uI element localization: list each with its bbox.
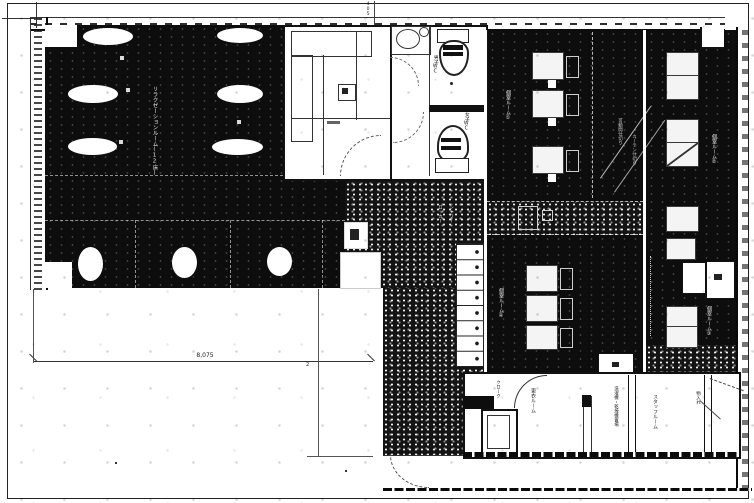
bottom-boundary-line	[383, 488, 752, 491]
changing-label: 更衣ルーム	[530, 388, 535, 430]
dim-crosshair-v	[36, 2, 37, 28]
round-stool	[267, 247, 292, 276]
corridor-fixture-box	[518, 206, 538, 230]
wc-upper-label: 男子WC	[432, 55, 437, 89]
floor-plan-sheet: 405 8,075 2 リラクゼーションルーム(12床)	[0, 0, 754, 503]
oval-table	[217, 28, 263, 43]
counter-box-large	[706, 261, 735, 299]
oval-table	[83, 28, 133, 45]
treatment-bed	[666, 306, 698, 328]
storage-label: 物入れ	[695, 391, 700, 425]
oval-table	[217, 85, 263, 103]
counter-box-mark	[714, 274, 722, 280]
counter-box-small	[682, 262, 706, 294]
wall-gap-h-g	[643, 235, 646, 345]
reception-box-mark	[612, 362, 619, 367]
toilet-tank-lower	[435, 158, 469, 173]
round-stool	[172, 247, 197, 278]
room-f-label: 個室ルーム①	[505, 90, 510, 134]
shower-label: シャワー	[448, 205, 453, 243]
bed-side-table	[560, 298, 573, 320]
treatment-bed	[666, 52, 699, 77]
dim-guide-left	[33, 289, 34, 363]
hall-dash-v1	[135, 220, 136, 288]
treatment-bed	[666, 206, 699, 232]
room-h-label: 個室ルーム④	[498, 288, 503, 324]
toilet-seat-band	[443, 52, 463, 56]
room-f-diag-note-2: カーテン仕切り	[631, 134, 636, 186]
pantry-fixture-mark	[342, 88, 348, 94]
treatment-bed	[666, 75, 699, 100]
wall-a-b	[628, 375, 636, 455]
treatment-bed	[666, 142, 699, 167]
hall-dash-v3	[322, 220, 323, 288]
oval-table	[212, 139, 263, 155]
room-g-dotted-strip	[650, 256, 651, 336]
toilet-seat-band	[441, 138, 461, 142]
hall-corner-notch-top	[45, 25, 77, 47]
bed-stool	[548, 80, 556, 88]
bed-stool	[548, 118, 556, 126]
hall-dash-h1	[45, 175, 283, 176]
shaft-box-inner	[487, 415, 510, 449]
treatment-bed	[532, 52, 564, 80]
corridor-fixture-small	[542, 210, 553, 221]
bottom-rooms-wall	[463, 452, 737, 457]
oval-table	[68, 138, 117, 155]
scan-dot-2	[345, 470, 347, 472]
treatment-bed	[526, 325, 558, 350]
dim-bottom-text: 8,075	[183, 352, 227, 359]
partition-stub-cap	[582, 395, 591, 407]
locker-strip	[456, 243, 484, 367]
treatment-bed	[526, 265, 558, 292]
pantry-counter-left	[291, 55, 313, 142]
room-g-lower-label: 個室ルーム③	[706, 306, 711, 350]
treatment-bed	[532, 146, 564, 174]
scan-mark	[126, 88, 130, 92]
corridor-edge-bottom	[487, 234, 643, 235]
wc-divider-wall-h	[429, 105, 484, 112]
bed-side-table	[566, 150, 579, 172]
treatment-bed	[526, 295, 558, 322]
bed-side-table	[566, 56, 579, 78]
bed-side-table	[560, 268, 573, 290]
closet-label: クローク	[495, 380, 500, 408]
treatment-bed	[532, 90, 564, 118]
treatment-bed	[666, 119, 699, 144]
staff-label: スタッフルーム	[652, 394, 657, 448]
pantry-counter-top	[291, 31, 372, 57]
pantry-text-smudge	[327, 121, 340, 124]
scan-dot-1	[115, 462, 117, 464]
corridor-edge-top	[487, 201, 643, 202]
pantry-shelf-line	[291, 118, 390, 119]
main-room-label: リラクゼーションルーム(12床)	[151, 86, 157, 190]
hall-corner-notch-bottom	[45, 262, 72, 288]
bed-stool	[548, 174, 556, 182]
toilet-seat-band	[443, 45, 463, 50]
room-g-upper-label: 個室ルーム②	[711, 134, 716, 178]
corridor-right	[487, 202, 643, 235]
room-f-dashed-partition	[592, 32, 593, 198]
toilet-seat-band	[441, 146, 461, 150]
dim-bottom-line	[33, 361, 373, 362]
scan-mark	[119, 140, 123, 144]
treatment-bed	[666, 238, 696, 260]
elevator-mark	[350, 229, 359, 240]
scan-mark	[120, 56, 124, 60]
round-stool	[78, 247, 103, 281]
dim-side-mark: 2	[306, 362, 309, 368]
room-f-diag-note-1: 可動間仕切り	[617, 118, 622, 170]
dim-guide-mid	[318, 289, 319, 457]
laundry-label: 洗濯機・乾燥機置場	[613, 386, 618, 442]
bed-side-table	[560, 328, 573, 348]
bottom-wall-black-block	[463, 396, 494, 409]
room-g-top-notch	[700, 27, 724, 49]
treatment-bed	[666, 326, 698, 348]
wc-dot	[450, 82, 453, 85]
wc-divider-wall-v	[429, 26, 430, 176]
locker-label: ロッカー	[437, 205, 442, 243]
pantry-divider-1	[323, 55, 324, 175]
sink-tap	[419, 27, 429, 37]
corridor-entry-lower	[383, 372, 463, 455]
dim-top-text: 405	[365, 2, 370, 17]
hall-dash-v2	[230, 220, 231, 288]
corridor-below-g	[646, 345, 736, 372]
scan-mark	[237, 120, 241, 124]
oval-table	[68, 85, 118, 103]
pantry-divider-2	[356, 31, 357, 120]
sink-basin	[396, 29, 420, 49]
bed-side-table	[566, 94, 579, 116]
pillar-box	[340, 252, 381, 289]
hall-dash-h2	[45, 220, 345, 221]
wall-b-c	[704, 375, 712, 455]
dim-guide-h	[307, 456, 373, 457]
